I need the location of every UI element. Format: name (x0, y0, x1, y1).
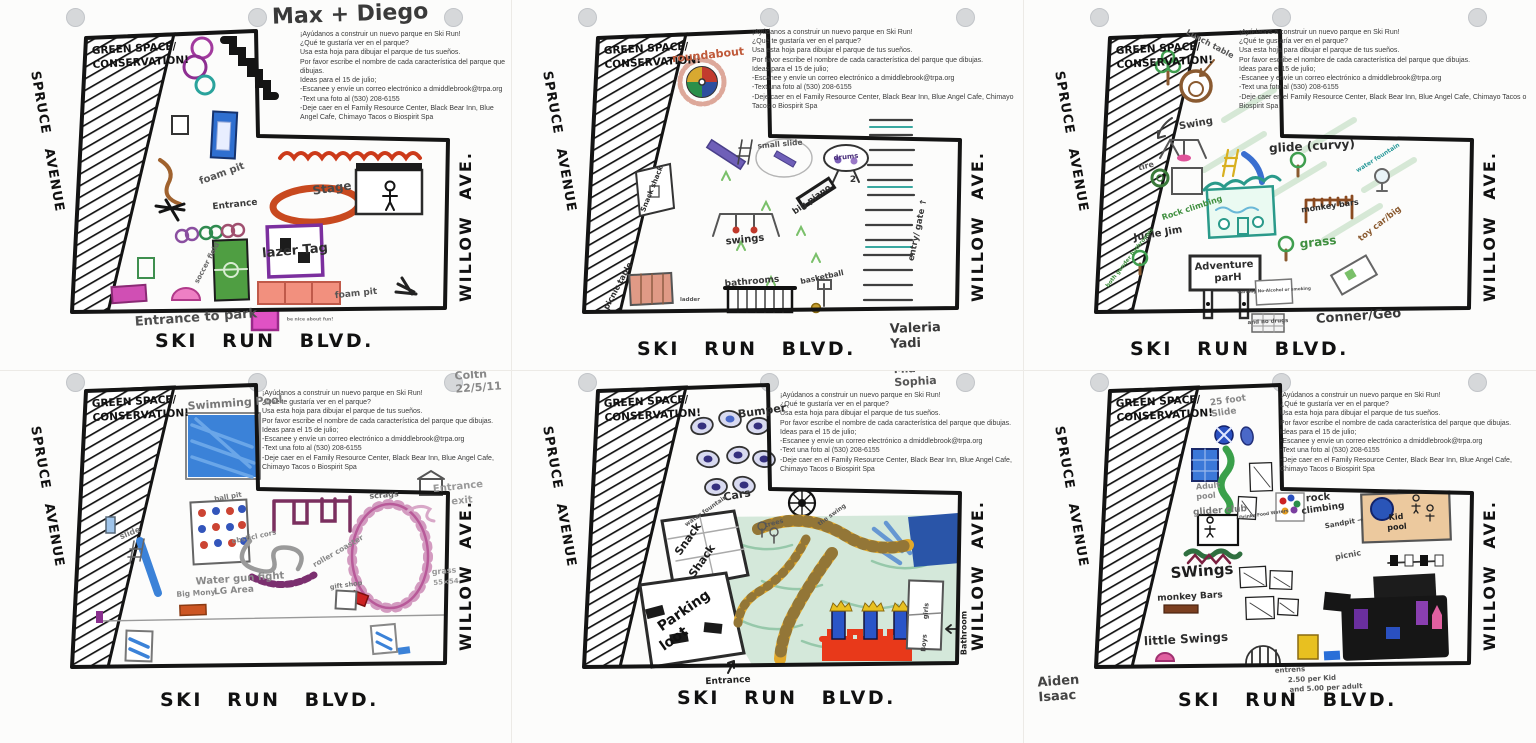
worksheet-max-diego: GREEN SPACE/CONSERVATION!¡Ayúdanos a con… (0, 0, 512, 371)
bumper-car-core (760, 456, 769, 463)
worksheet-aiden-isaac: GREEN SPACE/CONSERVATION!¡Ayúdanos a con… (1024, 371, 1536, 743)
instructions-line: ¡Ayúdanos a construir un nuevo parque en… (752, 28, 1018, 37)
green-space-hatch (1096, 34, 1198, 312)
ball (198, 509, 206, 517)
instructions-line: Ideas para el 15 de julio; (1239, 65, 1530, 74)
instructions-line: Usa esta hoja para dibujar el parque de … (1280, 409, 1530, 418)
instructions-line: Por favor escribe el nombre de cada cara… (1239, 56, 1530, 65)
ball (200, 541, 208, 549)
feature-label: Boys (919, 634, 928, 652)
picnic-cell (1405, 555, 1413, 566)
instructions-line: Por favor escribe el nombre de cada cara… (300, 58, 506, 76)
bumper-car-core (712, 484, 721, 491)
ball (226, 507, 234, 515)
street-label-ski-run-blvd: SKI RUN BLVD. (160, 689, 379, 711)
instructions-line: Por favor escribe el nombre de cada cara… (752, 56, 1018, 65)
instructions-line: -Text una foto al (530) 208-6155 (300, 95, 506, 104)
pond-right (371, 624, 397, 654)
stairs (224, 40, 275, 96)
instructions-line: -Text una foto al (530) 208-6155 (1280, 446, 1530, 455)
instructions-line: ¡Ayúdanos a construir un nuevo parque en… (780, 391, 1018, 400)
instructions-line: Por favor escribe el nombre de cada cara… (1280, 419, 1530, 428)
trampoline-mat (216, 122, 230, 151)
instructions-line: -Deje caer en el Family Resource Center,… (1239, 93, 1530, 111)
instructions-line: Usa esta hoja para dibujar el parque de … (1239, 46, 1530, 55)
blue-blob (1240, 426, 1255, 446)
instructions-line: -Escanee y envíe un correo electrónico a… (780, 437, 1018, 446)
instructions-line: Por favor escribe el nombre de cada cara… (780, 419, 1018, 428)
dirt-path (160, 160, 180, 204)
climb-frame (1172, 168, 1202, 194)
instructions-line: ¿Qué te gustaría ver en el parque? (780, 400, 1018, 409)
feature-label: entrens (1275, 665, 1306, 675)
ferris-hub (798, 499, 806, 507)
author-signature-line: Yadi (890, 336, 942, 353)
castle-tower (832, 611, 845, 639)
coaster-ties (352, 504, 428, 608)
blue-bench (1324, 651, 1340, 661)
author-signature: Coltn22/5/11 (454, 371, 502, 396)
instructions-line: ¿Qué te gustaría ver en el parque? (752, 37, 1018, 46)
instructions-line: ¿Qué te gustaría ver en el parque? (1239, 37, 1530, 46)
obstacle-loop (242, 541, 302, 572)
ball (214, 539, 222, 547)
castle-base (822, 639, 912, 661)
instructions-line: -Deje caer en el Family Resource Center,… (262, 454, 506, 472)
bumper-car-core (754, 423, 763, 430)
foam-pit-scribble (396, 278, 416, 294)
instructions-line: Ideas para el 15 de julio; (752, 65, 1018, 74)
green-slide (1221, 449, 1231, 511)
sketch-structure (1250, 463, 1273, 492)
author-signature: ValeriaYadi (889, 321, 941, 353)
border-figure (106, 517, 115, 533)
instructions-line: Usa esta hoja para dibujar el parque de … (752, 46, 1018, 55)
feature-label: pool (1196, 491, 1216, 502)
instructions-line: ¿Qué te gustaría ver en el parque? (1280, 400, 1530, 409)
castle-tower (894, 611, 907, 639)
instructions-line: -Escanee y envíe un correo electrónico a… (262, 435, 506, 444)
feature-label: ladder (680, 297, 700, 303)
instructions-line: Por favor escribe el nombre de cada cara… (262, 417, 506, 426)
author-signature-line: Sophia (894, 375, 937, 390)
ball (198, 525, 206, 533)
soccer-midline (215, 269, 247, 270)
instructions-line: -Deje caer en el Family Resource Center,… (1280, 456, 1530, 474)
dot (1280, 498, 1287, 505)
ground-line (100, 615, 444, 621)
street-label-ski-run-blvd: SKI RUN BLVD. (637, 338, 856, 360)
instructions-line: Usa esta hoja para dibujar el parque de … (300, 48, 506, 57)
mass-blue-block (1386, 627, 1400, 639)
picnic-cell (1420, 555, 1428, 566)
hut (172, 116, 188, 134)
street-label-willow-ave: WILLOW AVE. (968, 500, 987, 651)
green-space-hatch (72, 387, 174, 667)
instructions-line: Ideas para el 15 de julio; (262, 426, 506, 435)
worksheet-coltn: GREEN SPACE/CONSERVATION!¡Ayúdanos a con… (0, 371, 512, 743)
benches (258, 282, 340, 304)
worksheet-valeria-yadi: GREEN SPACE/CONSERVATION!¡Ayúdanos a con… (512, 0, 1024, 371)
basketball-hoop (818, 280, 831, 306)
instructions-line: -Text una foto al (530) 208-6155 (262, 444, 506, 453)
instructions-text: ¡Ayúdanos a construir un nuevo parque en… (752, 28, 1018, 111)
swing-frame (713, 214, 779, 236)
swing-seat (733, 227, 740, 234)
instructions-line: -Text una foto al (530) 208-6155 (752, 83, 1018, 92)
feature-label: parH (1214, 272, 1242, 284)
street-label-willow-ave: WILLOW AVE. (968, 151, 987, 302)
author-signature: MiaSophia (893, 371, 937, 389)
ball (226, 523, 234, 531)
drink-stand (138, 258, 154, 278)
instructions-line: ¡Ayúdanos a construir un nuevo parque en… (1280, 391, 1530, 400)
author-signature: AidenIsaac (1037, 674, 1081, 707)
gift-shop (336, 590, 357, 609)
instructions-text: ¡Ayúdanos a construir un nuevo parque en… (262, 389, 506, 472)
stage-top (356, 163, 422, 171)
ball (212, 523, 220, 531)
ball (238, 505, 246, 513)
instructions-line: Ideas para el 15 de julio; (300, 76, 506, 85)
street-label-willow-ave: WILLOW AVE. (1480, 500, 1499, 651)
mass-purple-block (1416, 601, 1428, 625)
gate-arc (1246, 646, 1280, 663)
feature-label: girls (921, 603, 930, 620)
black-arm (1323, 592, 1351, 613)
glider-club-box (1198, 515, 1238, 545)
street-label-willow-ave: WILLOW AVE. (456, 151, 475, 302)
feature-label: be nice about fun! (287, 318, 334, 323)
instructions-line: ¿Qué te gustaría ver en el parque? (262, 398, 506, 407)
hut-roof (418, 471, 444, 479)
water-fountain (1375, 169, 1389, 183)
feature-label: 2 (850, 175, 856, 185)
lake-dark (908, 513, 960, 567)
small-slide (774, 151, 796, 167)
instructions-line: ¿Qué te gustaría ver en el parque? (300, 39, 506, 48)
picnic-cell (1390, 555, 1398, 566)
ball (238, 521, 246, 529)
bench (1164, 605, 1198, 613)
wheel-hub (699, 79, 705, 85)
scanned-worksheets-board: GREEN SPACE/CONSERVATION!¡Ayúdanos a con… (0, 0, 1536, 743)
instructions-text: ¡Ayúdanos a construir un nuevo parque en… (300, 30, 506, 122)
bumper-car-core (734, 452, 743, 459)
bumper-car-core (704, 456, 713, 463)
instructions-line: -Escanee y envíe un correo electrónico a… (1239, 74, 1530, 83)
sketch-structure (1278, 598, 1299, 615)
bumper-car-core (726, 416, 735, 423)
flame-row (280, 153, 420, 158)
clubhouse-window (1253, 217, 1263, 227)
instructions-line: ¡Ayúdanos a construir un nuevo parque en… (300, 30, 506, 39)
ball (212, 507, 220, 515)
instructions-line: Ideas para el 15 de julio; (1280, 428, 1530, 437)
green-space-hatch (1096, 387, 1198, 667)
street-label-willow-ave: WILLOW AVE. (456, 500, 475, 651)
sign-dot (1206, 302, 1210, 306)
instructions-line: -Escanee y envíe un correo electrónico a… (1280, 437, 1530, 446)
fire-pit (180, 605, 206, 616)
instructions-line: -Escanee y envíe un correo electrónico a… (752, 74, 1018, 83)
castle-tower (864, 611, 877, 639)
instructions-line: -Text una foto al (530) 208-6155 (780, 446, 1018, 455)
street-label-ski-run-blvd: SKI RUN BLVD. (1130, 338, 1349, 360)
street-label-ski-run-blvd: SKI RUN BLVD. (1178, 689, 1397, 711)
dot (1288, 495, 1295, 502)
dot (1294, 501, 1301, 508)
instructions-line: -Text una foto al (530) 208-6155 (1239, 83, 1530, 92)
feature-label: Kid (1388, 512, 1403, 522)
instructions-text: ¡Ayúdanos a construir un nuevo parque en… (1280, 391, 1530, 474)
blue-chip (398, 646, 411, 655)
swing-seat (1177, 155, 1191, 162)
instructions-line: -Deje caer en el Family Resource Center,… (752, 93, 1018, 111)
mass-purple-block (1354, 609, 1368, 629)
instructions-line: -Deje caer en el Family Resource Center,… (300, 104, 506, 122)
instructions-text: ¡Ayúdanos a construir un nuevo parque en… (1239, 28, 1530, 111)
picnic-cell (1435, 555, 1443, 566)
picnic-table (629, 273, 673, 305)
street-label-ski-run-blvd: SKI RUN BLVD. (677, 687, 896, 709)
road-stripes (864, 120, 914, 300)
instructions-line: -Deje caer en el Family Resource Center,… (780, 456, 1018, 474)
parked-car (704, 622, 723, 634)
pink-dome (1156, 653, 1174, 661)
clubhouse-window (1219, 219, 1229, 229)
instructions-line: -Escanee y envíe un correo electrónico a… (300, 85, 506, 94)
yellow-booth (1298, 635, 1318, 659)
author-signature-line: Isaac (1038, 688, 1081, 706)
street-label-ski-run-blvd: SKI RUN BLVD. (155, 330, 374, 352)
sign-dot (1242, 302, 1246, 306)
instructions-line: ¡Ayúdanos a construir un nuevo parque en… (1239, 28, 1530, 37)
dot (1291, 507, 1298, 514)
gate-mark (96, 611, 103, 623)
spiral-loop (196, 76, 214, 94)
instructions-text: ¡Ayúdanos a construir un nuevo parque en… (780, 391, 1018, 474)
instructions-line: Ideas para el 15 de julio; (780, 428, 1018, 437)
green-space-hatch (72, 34, 174, 312)
road-teal-stripes (866, 127, 912, 247)
street-label-willow-ave: WILLOW AVE. (1480, 151, 1499, 302)
dance-floor (111, 285, 146, 303)
instructions-line: Usa esta hoja para dibujar el parque de … (780, 409, 1018, 418)
worksheet-mia-sophia: GREEN SPACE/CONSERVATION!¡Ayúdanos a con… (512, 371, 1024, 743)
pink-dome (172, 288, 200, 300)
bumper-car-core (698, 423, 707, 430)
maroon-swings (274, 497, 350, 531)
feature-label: pool (1387, 522, 1407, 533)
worksheet-conner-geo: GREEN SPACE/CONSERVATION!¡Ayúdanos a con… (1024, 0, 1536, 371)
instructions-line: Usa esta hoja para dibujar el parque de … (262, 407, 506, 416)
